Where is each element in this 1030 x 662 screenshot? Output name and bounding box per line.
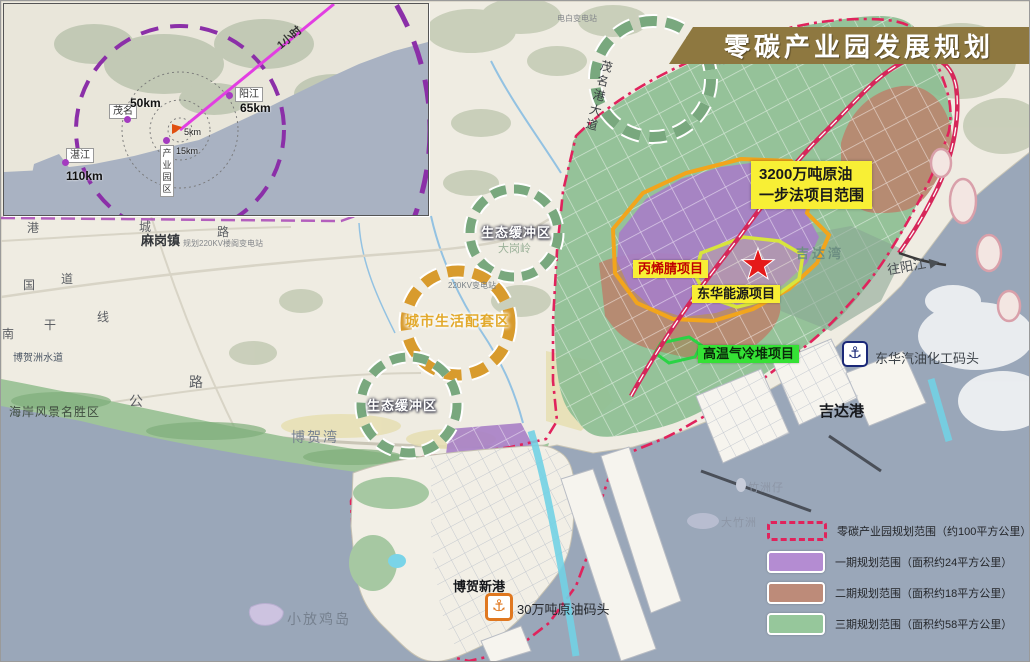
- road-char-lu: 路: [217, 223, 229, 240]
- legend-swatch-boundary: [767, 521, 827, 541]
- legend-row-phase1: 一期规划范围（面积约24平方公里）: [767, 552, 1029, 572]
- label-coastal-scenic-area: 海岸风景名胜区: [9, 405, 100, 419]
- inset-ring15-label: 15km: [176, 146, 198, 156]
- inset-location-map: 1小时 茂名 50km 阳江 65km 湛江 110km 产业园区 5km 15…: [3, 3, 429, 216]
- map-legend: 零碳产业园规划范围（约100平方公里） 一期规划范围（面积约24平方公里） 二期…: [767, 521, 1029, 645]
- legend-row-phase3: 三期规划范围（面积约58平方公里）: [767, 614, 1029, 634]
- inset-dot-yangjiang: [226, 92, 233, 99]
- road-char-gong: 公: [129, 391, 143, 411]
- peninsula-pond: [388, 554, 406, 568]
- label-eco-buffer-north: 生态缓冲区: [481, 225, 551, 241]
- title-banner: 零碳产业园发展规划: [669, 27, 1030, 64]
- road-char-nan: 南: [2, 325, 14, 342]
- road-char-dao: 道: [61, 270, 73, 287]
- label-dianbai-substation: 电白变电站: [557, 14, 597, 24]
- road-char-lu2: 路: [189, 372, 203, 392]
- label-donghua-energy-project: 东华能源项目: [692, 285, 780, 303]
- inset-dot-park: [163, 137, 170, 144]
- inset-dist-maoming: 50km: [130, 96, 161, 110]
- legend-label-boundary: 零碳产业园规划范围（约100平方公里）: [837, 523, 1029, 539]
- label-jida-bay: 吉达湾: [796, 246, 844, 262]
- label-htgr-project: 高温气冷堆项目: [698, 345, 799, 363]
- project-range-line2: 一步法项目范围: [759, 185, 864, 206]
- legend-label-phase1: 一期规划范围（面积约24平方公里）: [835, 554, 1012, 570]
- inset-city-zhanjiang: 湛江: [66, 148, 94, 163]
- anchor-icon-orange: ⚓: [485, 593, 513, 621]
- legend-row-phase2: 二期规划范围（面积约18平方公里）: [767, 583, 1029, 603]
- label-xiaofangji-island: 小放鸡岛: [287, 611, 351, 628]
- label-donghua-wharf: 东华汽油化工码头: [875, 351, 979, 367]
- anchor-icon-navy: ⚓: [842, 341, 868, 367]
- label-magang-town: 麻岗镇: [141, 233, 180, 249]
- page-title: 零碳产业园发展规划: [706, 27, 994, 64]
- legend-swatch-phase2: [767, 582, 825, 604]
- label-eco-buffer-south: 生态缓冲区: [367, 398, 437, 414]
- road-char-xian: 线: [97, 308, 109, 325]
- project-range-line1: 3200万吨原油: [759, 164, 864, 185]
- label-bohe-bay: 博贺湾: [291, 429, 339, 446]
- label-dagangling: 大岗岭: [498, 243, 531, 256]
- legend-label-phase2: 二期规划范围（面积约18平方公里）: [835, 585, 1012, 601]
- label-city-living-area: 城市生活配套区: [405, 313, 510, 330]
- label-220kv-substation: 220KV变电站: [448, 281, 496, 291]
- inset-dist-yangjiang: 65km: [240, 101, 271, 115]
- road-char-gang: 港: [27, 219, 39, 236]
- legend-label-phase3: 三期规划范围（面积约58平方公里）: [835, 616, 1012, 632]
- inset-park-label: 产业园区: [160, 145, 174, 197]
- legend-row-boundary: 零碳产业园规划范围（约100平方公里）: [767, 521, 1029, 541]
- label-dazhuzhou: 大竹洲: [721, 517, 757, 530]
- label-jida-port: 吉达港: [819, 403, 864, 421]
- legend-swatch-phase1: [767, 551, 825, 573]
- label-magang-substation: 规划220KV楼阁变电站: [183, 239, 263, 249]
- label-project-range: 3200万吨原油 一步法项目范围: [751, 161, 872, 209]
- road-char-gan: 干: [44, 316, 56, 333]
- label-acrylonitrile-project: 丙烯腈项目: [633, 260, 708, 278]
- legend-swatch-phase3: [767, 613, 825, 635]
- zhuzhouzai-shape: [736, 478, 746, 492]
- label-zhuzhouzai: 竹洲仔: [748, 482, 784, 495]
- road-char-guo: 国: [23, 276, 35, 293]
- planning-map: 零碳产业园发展规划 1小时 茂名 50km 阳江 65km 湛江 110km 产…: [0, 0, 1030, 662]
- inset-dist-zhanjiang: 110km: [66, 169, 103, 183]
- dazhuzhou-shape: [687, 513, 719, 529]
- inset-canvas: [4, 4, 428, 215]
- inset-dot-maoming: [124, 116, 131, 123]
- label-crude-oil-wharf: 30万吨原油码头: [517, 602, 609, 618]
- inset-dot-zhanjiang: [62, 159, 69, 166]
- road-char-cheng: 城: [139, 218, 151, 235]
- inset-ring5-label: 5km: [184, 127, 201, 137]
- label-bohezhou-waterway: 博贺洲水道: [13, 353, 63, 365]
- inset-city-yangjiang: 阳江: [235, 87, 263, 102]
